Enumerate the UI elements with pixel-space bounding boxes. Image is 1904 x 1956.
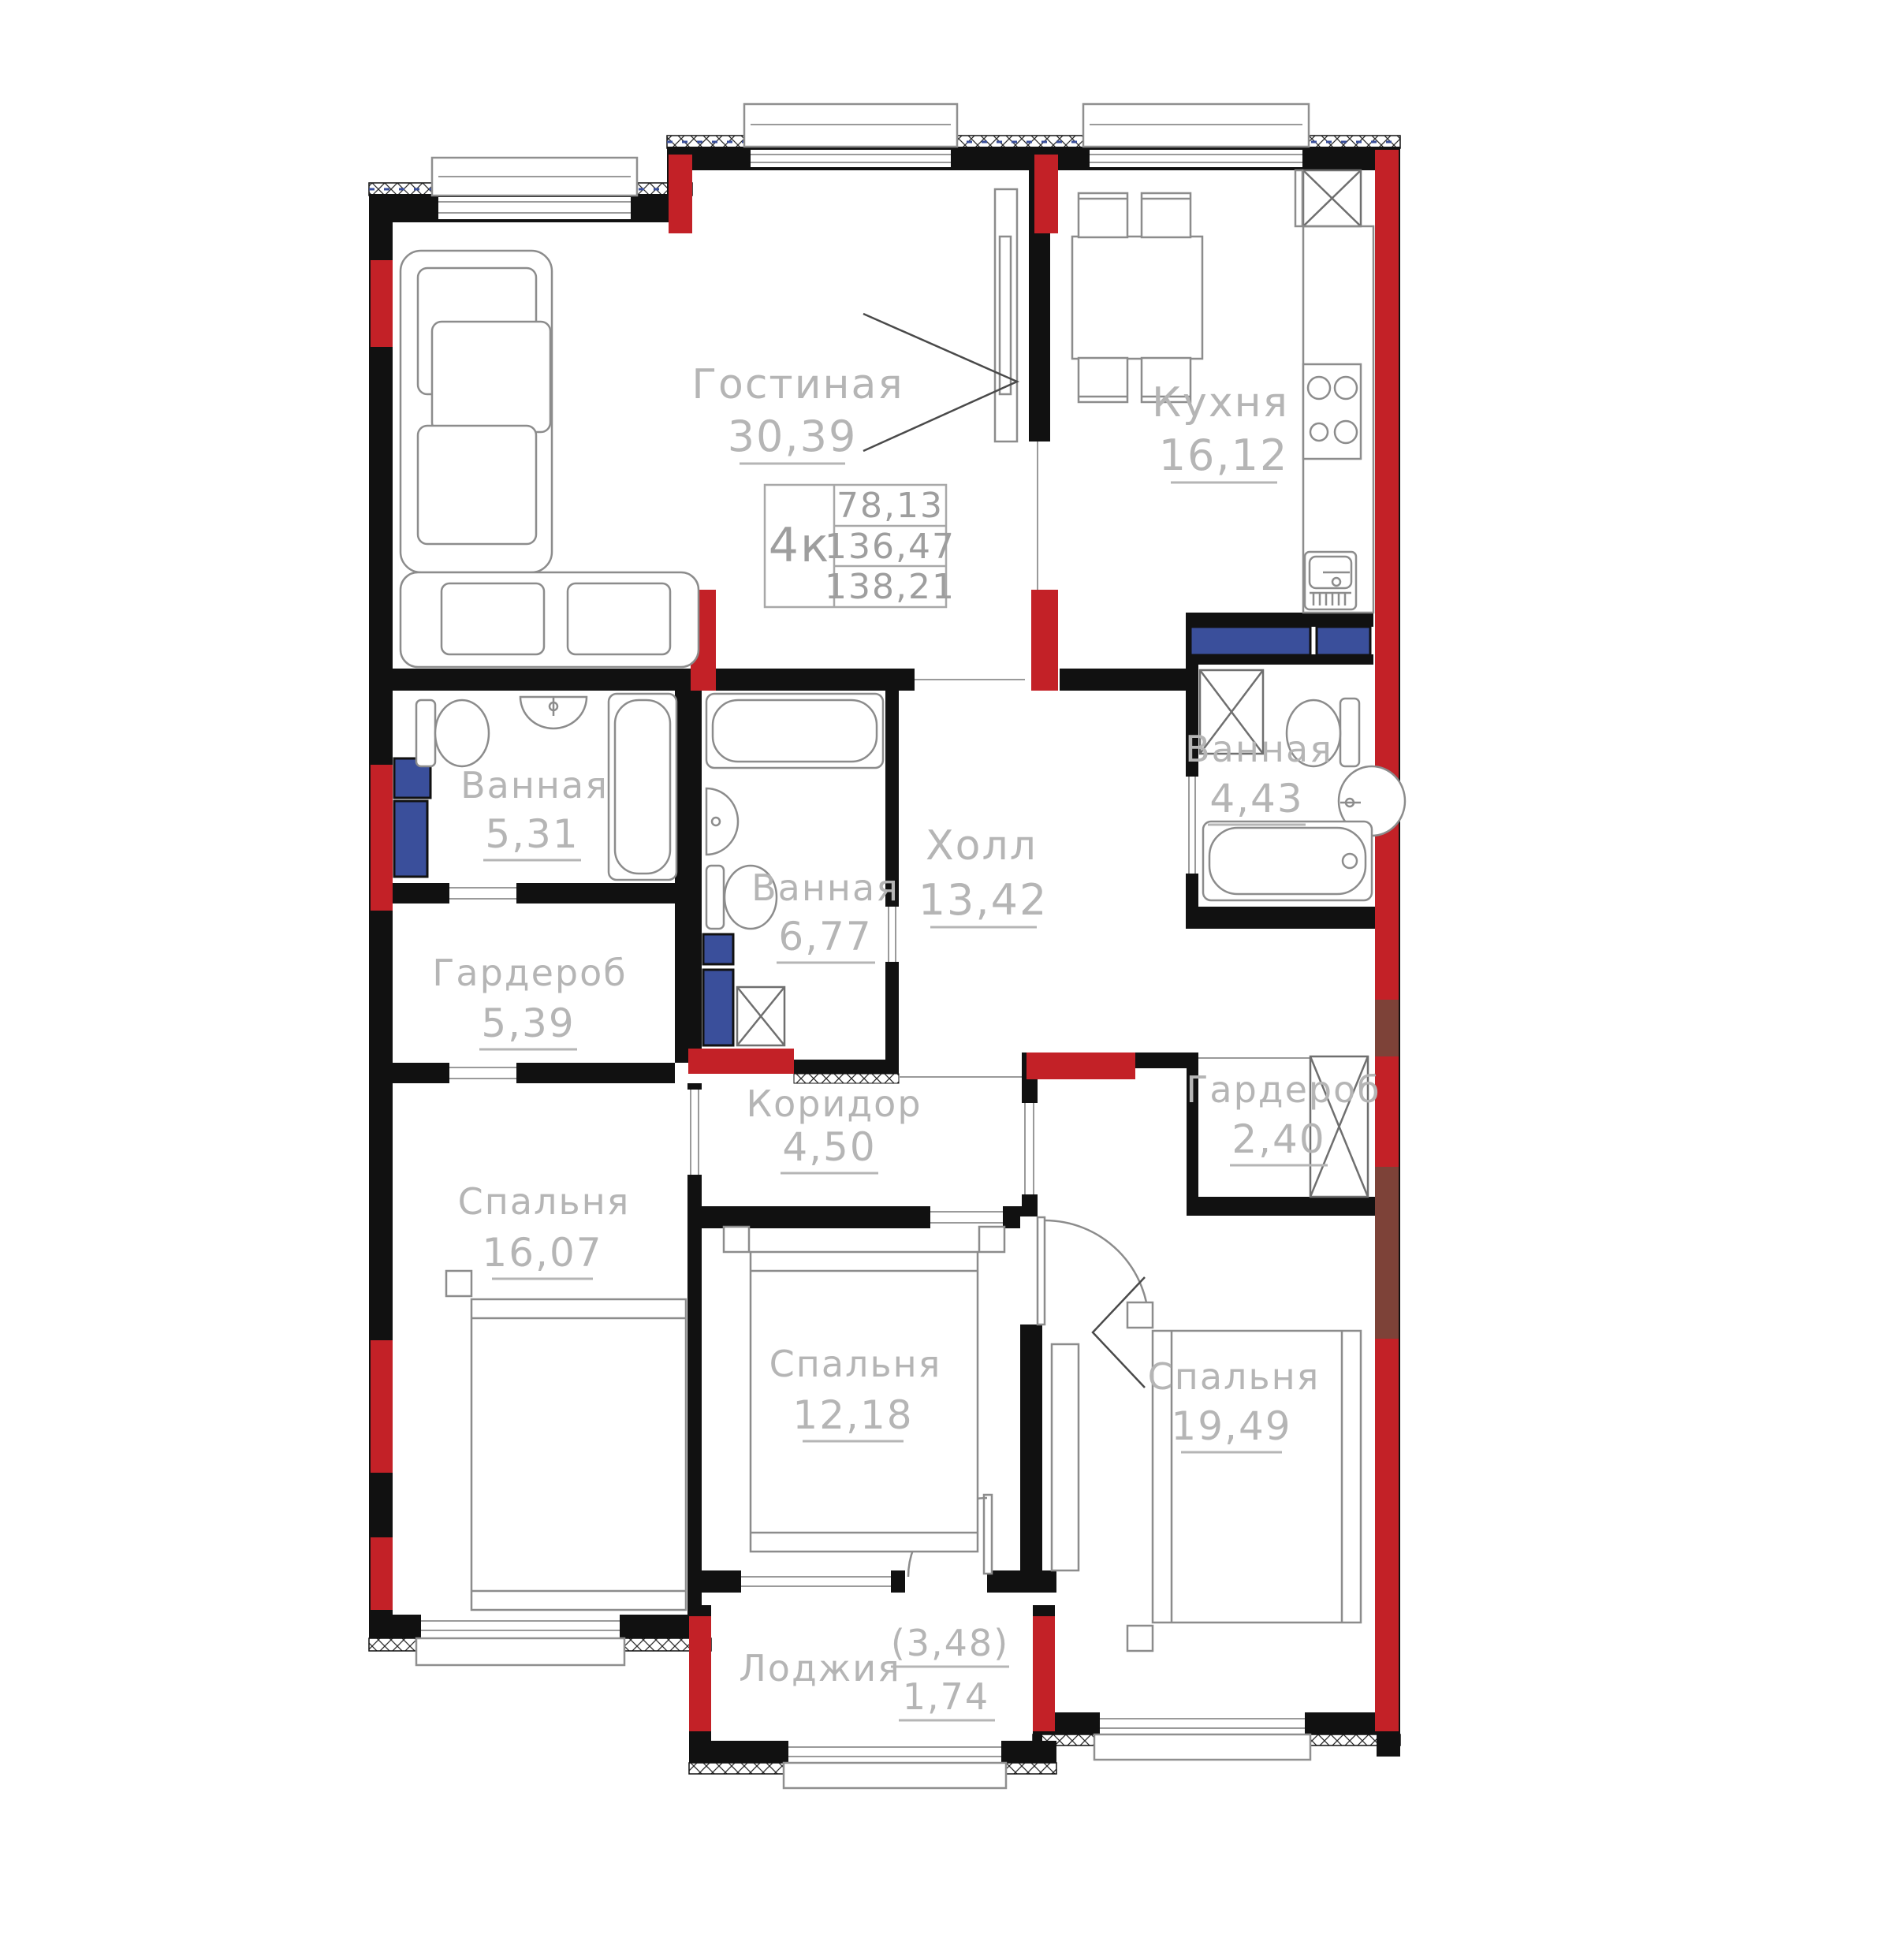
- room-label-living: Гостиная: [691, 361, 904, 408]
- bathtub-icon: [1203, 822, 1372, 900]
- room-area-bedroom-right: 19,49: [1171, 1403, 1291, 1449]
- closet: [1052, 1344, 1079, 1570]
- room-label-kitchen: Кухня: [1152, 379, 1289, 427]
- room-label-bedroom-left: Спальня: [458, 1180, 631, 1223]
- room-label-wardrobe-left: Гардероб: [432, 952, 627, 994]
- bed-bedroom-left: [446, 1271, 686, 1610]
- room-label-wardrobe-right: Гардероб: [1186, 1068, 1380, 1111]
- room-area-bath-left: 5,31: [485, 811, 579, 857]
- bathtub-icon: [609, 694, 676, 880]
- room-area-living: 30,39: [728, 412, 858, 461]
- kitchen-sink-icon: [1305, 552, 1356, 609]
- room-area-kitchen: 16,12: [1159, 430, 1289, 480]
- floor-plan-canvas: 4к 78,13 136,47 138,21 Гостиная 30,39 Ку…: [0, 0, 1904, 1956]
- washing-machine-icon: [737, 987, 784, 1045]
- room-area-bath-mid: 6,77: [778, 914, 872, 959]
- room-label-bedroom-right: Спальня: [1148, 1355, 1321, 1398]
- unit-area-full: 138,21: [825, 567, 956, 607]
- toilet-icon: [416, 700, 489, 766]
- room-area-corridor: 4,50: [782, 1124, 876, 1170]
- room-label-bath-left: Ванная: [460, 764, 609, 807]
- bed-bedroom-mid: [724, 1227, 1004, 1552]
- room-area-bedroom-left: 16,07: [482, 1230, 602, 1276]
- room-area-wardrobe-right: 2,40: [1231, 1116, 1325, 1162]
- dining-set: [1072, 193, 1202, 402]
- kitchen-counter: [1295, 170, 1373, 613]
- unit-info-table: 4к 78,13 136,47 138,21: [765, 485, 956, 607]
- tv-stand: [995, 189, 1017, 441]
- room-area-wardrobe-left: 5,39: [481, 1000, 575, 1046]
- unit-area-total: 136,47: [825, 527, 956, 567]
- room-area-bath-right: 4,43: [1209, 776, 1303, 822]
- room-area-loggia-gross: (3,48): [891, 1622, 1009, 1664]
- door-arrow-icon: [1093, 1277, 1145, 1388]
- room-label-hall: Холл: [926, 822, 1038, 870]
- unit-area-living: 78,13: [836, 486, 944, 526]
- room-area-bedroom-mid: 12,18: [792, 1392, 913, 1438]
- room-label-loggia: Лоджия: [739, 1647, 901, 1690]
- stove-icon: [1303, 364, 1361, 459]
- room-label-bedroom-mid: Спальня: [769, 1343, 942, 1385]
- room-area-loggia: 1,74: [903, 1675, 989, 1718]
- wash-basin-icon: [706, 788, 738, 855]
- unit-type-label: 4к: [769, 518, 830, 573]
- wash-basin-icon: [520, 697, 587, 728]
- room-label-corridor: Коридор: [746, 1082, 922, 1125]
- bathtub-icon: [706, 694, 883, 768]
- room-label-bath-right: Ванная: [1185, 728, 1333, 770]
- room-area-hall: 13,42: [918, 875, 1049, 925]
- room-label-bath-mid: Ванная: [751, 866, 900, 909]
